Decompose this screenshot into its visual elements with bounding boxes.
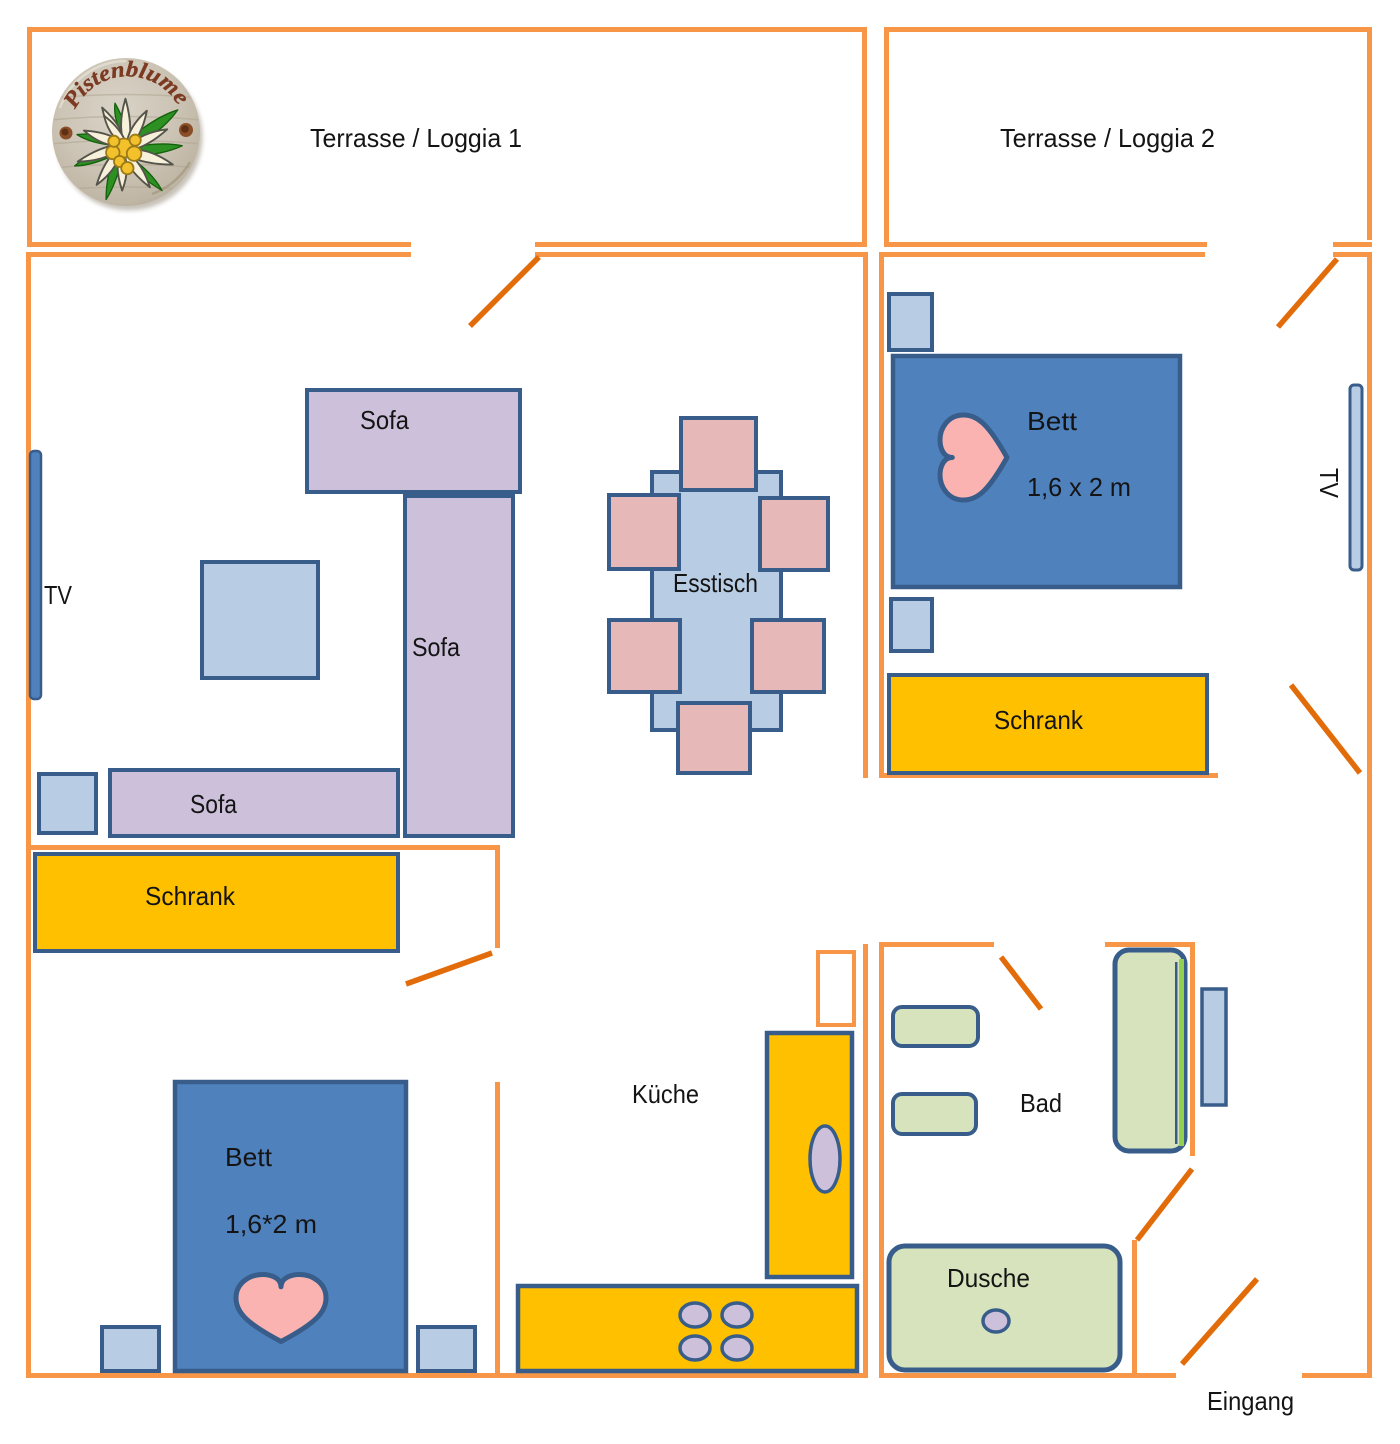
svg-text:Küche: Küche — [632, 1079, 699, 1109]
svg-text:Sofa: Sofa — [360, 405, 409, 435]
svg-text:TV: TV — [1314, 468, 1344, 499]
svg-text:Bad: Bad — [1020, 1088, 1062, 1118]
svg-text:Bett: Bett — [225, 1142, 273, 1172]
svg-text:Schrank: Schrank — [994, 705, 1084, 735]
svg-text:1,6*2 m: 1,6*2 m — [225, 1209, 317, 1239]
svg-text:Schrank: Schrank — [145, 881, 236, 911]
svg-text:Bett: Bett — [1027, 406, 1078, 436]
svg-text:Sofa: Sofa — [190, 789, 237, 819]
svg-text:Sofa: Sofa — [412, 632, 460, 662]
svg-text:Esstisch: Esstisch — [673, 568, 758, 598]
svg-text:Dusche: Dusche — [947, 1263, 1030, 1293]
svg-text:Terrasse / Loggia 1: Terrasse / Loggia 1 — [310, 123, 522, 153]
svg-text:TV: TV — [44, 580, 73, 610]
svg-text:1,6 x 2 m: 1,6 x 2 m — [1027, 472, 1131, 502]
svg-text:Eingang: Eingang — [1207, 1386, 1294, 1416]
svg-text:Terrasse / Loggia 2: Terrasse / Loggia 2 — [1000, 123, 1215, 153]
